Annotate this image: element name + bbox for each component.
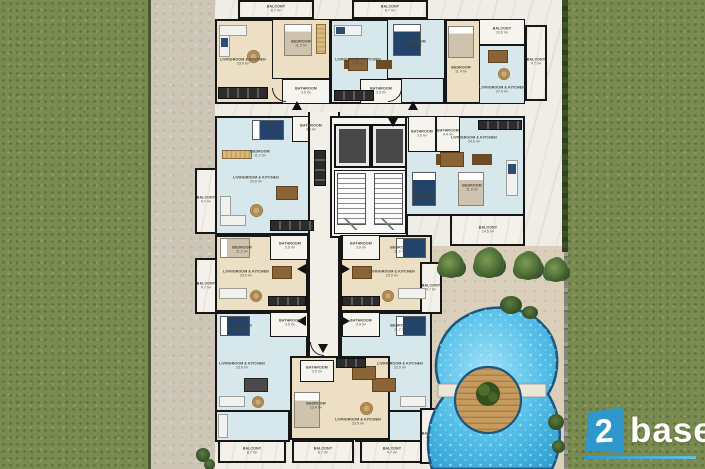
dining-table — [272, 266, 292, 279]
entry-arrow-icon — [388, 118, 398, 127]
logo-text: base — [630, 408, 705, 454]
room-label: BATHROOM3.9 m² — [370, 87, 392, 96]
footpath — [148, 0, 221, 469]
hallway-top — [217, 104, 523, 116]
grass-right — [566, 0, 705, 469]
brand-logo: 2 base — [576, 402, 702, 462]
room-label: BEDROOM11.2 m² — [390, 324, 409, 333]
kitchen-counter — [270, 220, 314, 231]
room-label: LIVINGROOM & KITCHEN23.9 m² — [220, 58, 266, 67]
room-label: BEDROOM11.2 m² — [232, 246, 251, 255]
room-label: BATHROOM3.9 m² — [411, 130, 433, 139]
logo-underline — [584, 456, 696, 459]
elevator-left — [334, 124, 371, 168]
dining-table — [440, 152, 464, 167]
rug — [250, 290, 262, 302]
room-label: BALCONY10.6 m² — [493, 27, 511, 36]
room-label: BALCONY4.7 m² — [422, 284, 440, 293]
grass-left — [0, 0, 160, 469]
room-label: BALCONY8.7 m² — [267, 5, 285, 14]
room-label: LIVINGROOM & KITCHEN23.9 m² — [223, 270, 269, 279]
palm-plant — [474, 248, 504, 278]
entry-arrow-icon — [297, 264, 306, 274]
kitchen-counter — [342, 296, 380, 306]
entry-arrow-icon — [408, 101, 418, 110]
sofa — [218, 414, 228, 438]
bush — [522, 306, 538, 319]
palm-plant — [544, 258, 568, 282]
room-label: BALCONY4.7 m² — [197, 196, 215, 205]
room-label: BEDROOM11.9 m² — [462, 184, 481, 193]
entry-arrow-icon — [341, 264, 350, 274]
room-label: BATHROOM3.9 m² — [279, 319, 301, 328]
sofa-cushion — [221, 38, 228, 47]
room-label: BALCONY8.7 m² — [314, 447, 332, 456]
island-plant — [488, 392, 498, 402]
room-label: BATHROOM3.9 m² — [279, 242, 301, 251]
palm-plant — [514, 252, 542, 280]
room-label: BALCONY8.7 m² — [381, 5, 399, 14]
room-label: BEDROOM11.2 m² — [250, 150, 269, 159]
room-label: BEDROOM11.2 m² — [390, 246, 409, 255]
room-label: LIVINGROOM & KITCHEN23.9 m² — [233, 176, 279, 185]
room-label: BATHROOM3.9 m² — [306, 366, 328, 375]
sofa-cushion — [508, 164, 516, 174]
room-label: BALCONY4.7 m² — [527, 58, 545, 67]
island-plant — [478, 384, 490, 396]
room-label: LIVINGROOM & KITCHEN23.9 m² — [369, 270, 415, 279]
dining-table — [244, 378, 268, 392]
kitchen-counter — [334, 90, 374, 101]
room-label: BATHROOM3.9 m² — [295, 87, 317, 96]
rug — [382, 290, 394, 302]
bed — [448, 26, 474, 58]
room-label: BALCONY8.7 m² — [243, 447, 261, 456]
logo-mark: 2 — [583, 407, 625, 455]
wardrobe — [316, 24, 326, 54]
rug — [498, 68, 510, 80]
kitchen-counter — [268, 296, 306, 306]
entry-arrow-icon — [341, 316, 350, 326]
dining-table — [276, 186, 298, 200]
rug — [252, 396, 264, 408]
room-label: LIVINGROOM & KITCHEN23.9 m² — [377, 362, 423, 371]
palm-plant — [438, 252, 464, 278]
room-label: BATHROOM3.9 m² — [300, 124, 322, 133]
room-label: BEDROOM11.2 m² — [232, 324, 251, 333]
room-label: LIVINGROOM & KITCHEN23.9 m² — [335, 58, 381, 67]
room-label: BEDROOM11.2 m² — [406, 40, 425, 49]
sofa — [219, 288, 247, 299]
dining-table — [488, 50, 508, 63]
room-label: BEDROOM13.4 m² — [306, 402, 325, 411]
kitchen-counter — [478, 120, 522, 130]
room-label: LIVINGROOM & KITCHEN23.9 m² — [219, 362, 265, 371]
site-plan: BALCONY8.7 m² LIVINGROOM & KITCHEN23.9 m… — [0, 0, 705, 469]
room-label: BATHROOM3.9 m² — [350, 319, 372, 328]
room-label: BATHROOM3.9 m² — [350, 242, 372, 251]
wardrobe — [222, 150, 252, 159]
swimming-pool — [418, 292, 570, 469]
room-label: LIVINGROOM & KITCHEN27.4 m² — [479, 86, 525, 95]
hedge-strip — [562, 0, 568, 252]
rug — [250, 204, 263, 217]
dining-table — [352, 366, 376, 380]
elevator-right — [371, 124, 408, 168]
kitchen-counter — [314, 150, 326, 186]
stair-winder — [374, 218, 401, 230]
room-label: LIVINGROOM & KITCHEN24.6 m² — [451, 136, 497, 145]
room-label: BALCONY14.5 m² — [479, 226, 497, 235]
bush — [500, 296, 522, 314]
dining-table — [372, 378, 396, 392]
room-label: BALCONY4.7 m² — [197, 282, 215, 291]
stair-winder — [337, 218, 364, 230]
sofa-cushion — [336, 27, 345, 34]
bed — [252, 120, 284, 140]
room-label: BEDROOM11.4 m² — [451, 66, 470, 75]
pool-bridge — [518, 384, 546, 397]
bush — [552, 440, 565, 453]
bush — [548, 414, 564, 430]
entry-arrow-icon — [292, 101, 302, 110]
room-label: BALCONY4.7 m² — [383, 447, 401, 456]
kitchen-counter — [218, 87, 268, 99]
sofa — [220, 215, 246, 226]
sofa — [219, 25, 247, 36]
room-label: BEDROOM11.2 m² — [291, 40, 310, 49]
sofa — [219, 396, 245, 407]
room-label: BEDROOM11.2 m² — [416, 194, 435, 203]
kitchen-counter — [336, 358, 366, 368]
room-label: LIVINGROOM & KITCHEN23.9 m² — [335, 418, 381, 427]
rug — [360, 402, 373, 415]
bush — [204, 459, 215, 469]
